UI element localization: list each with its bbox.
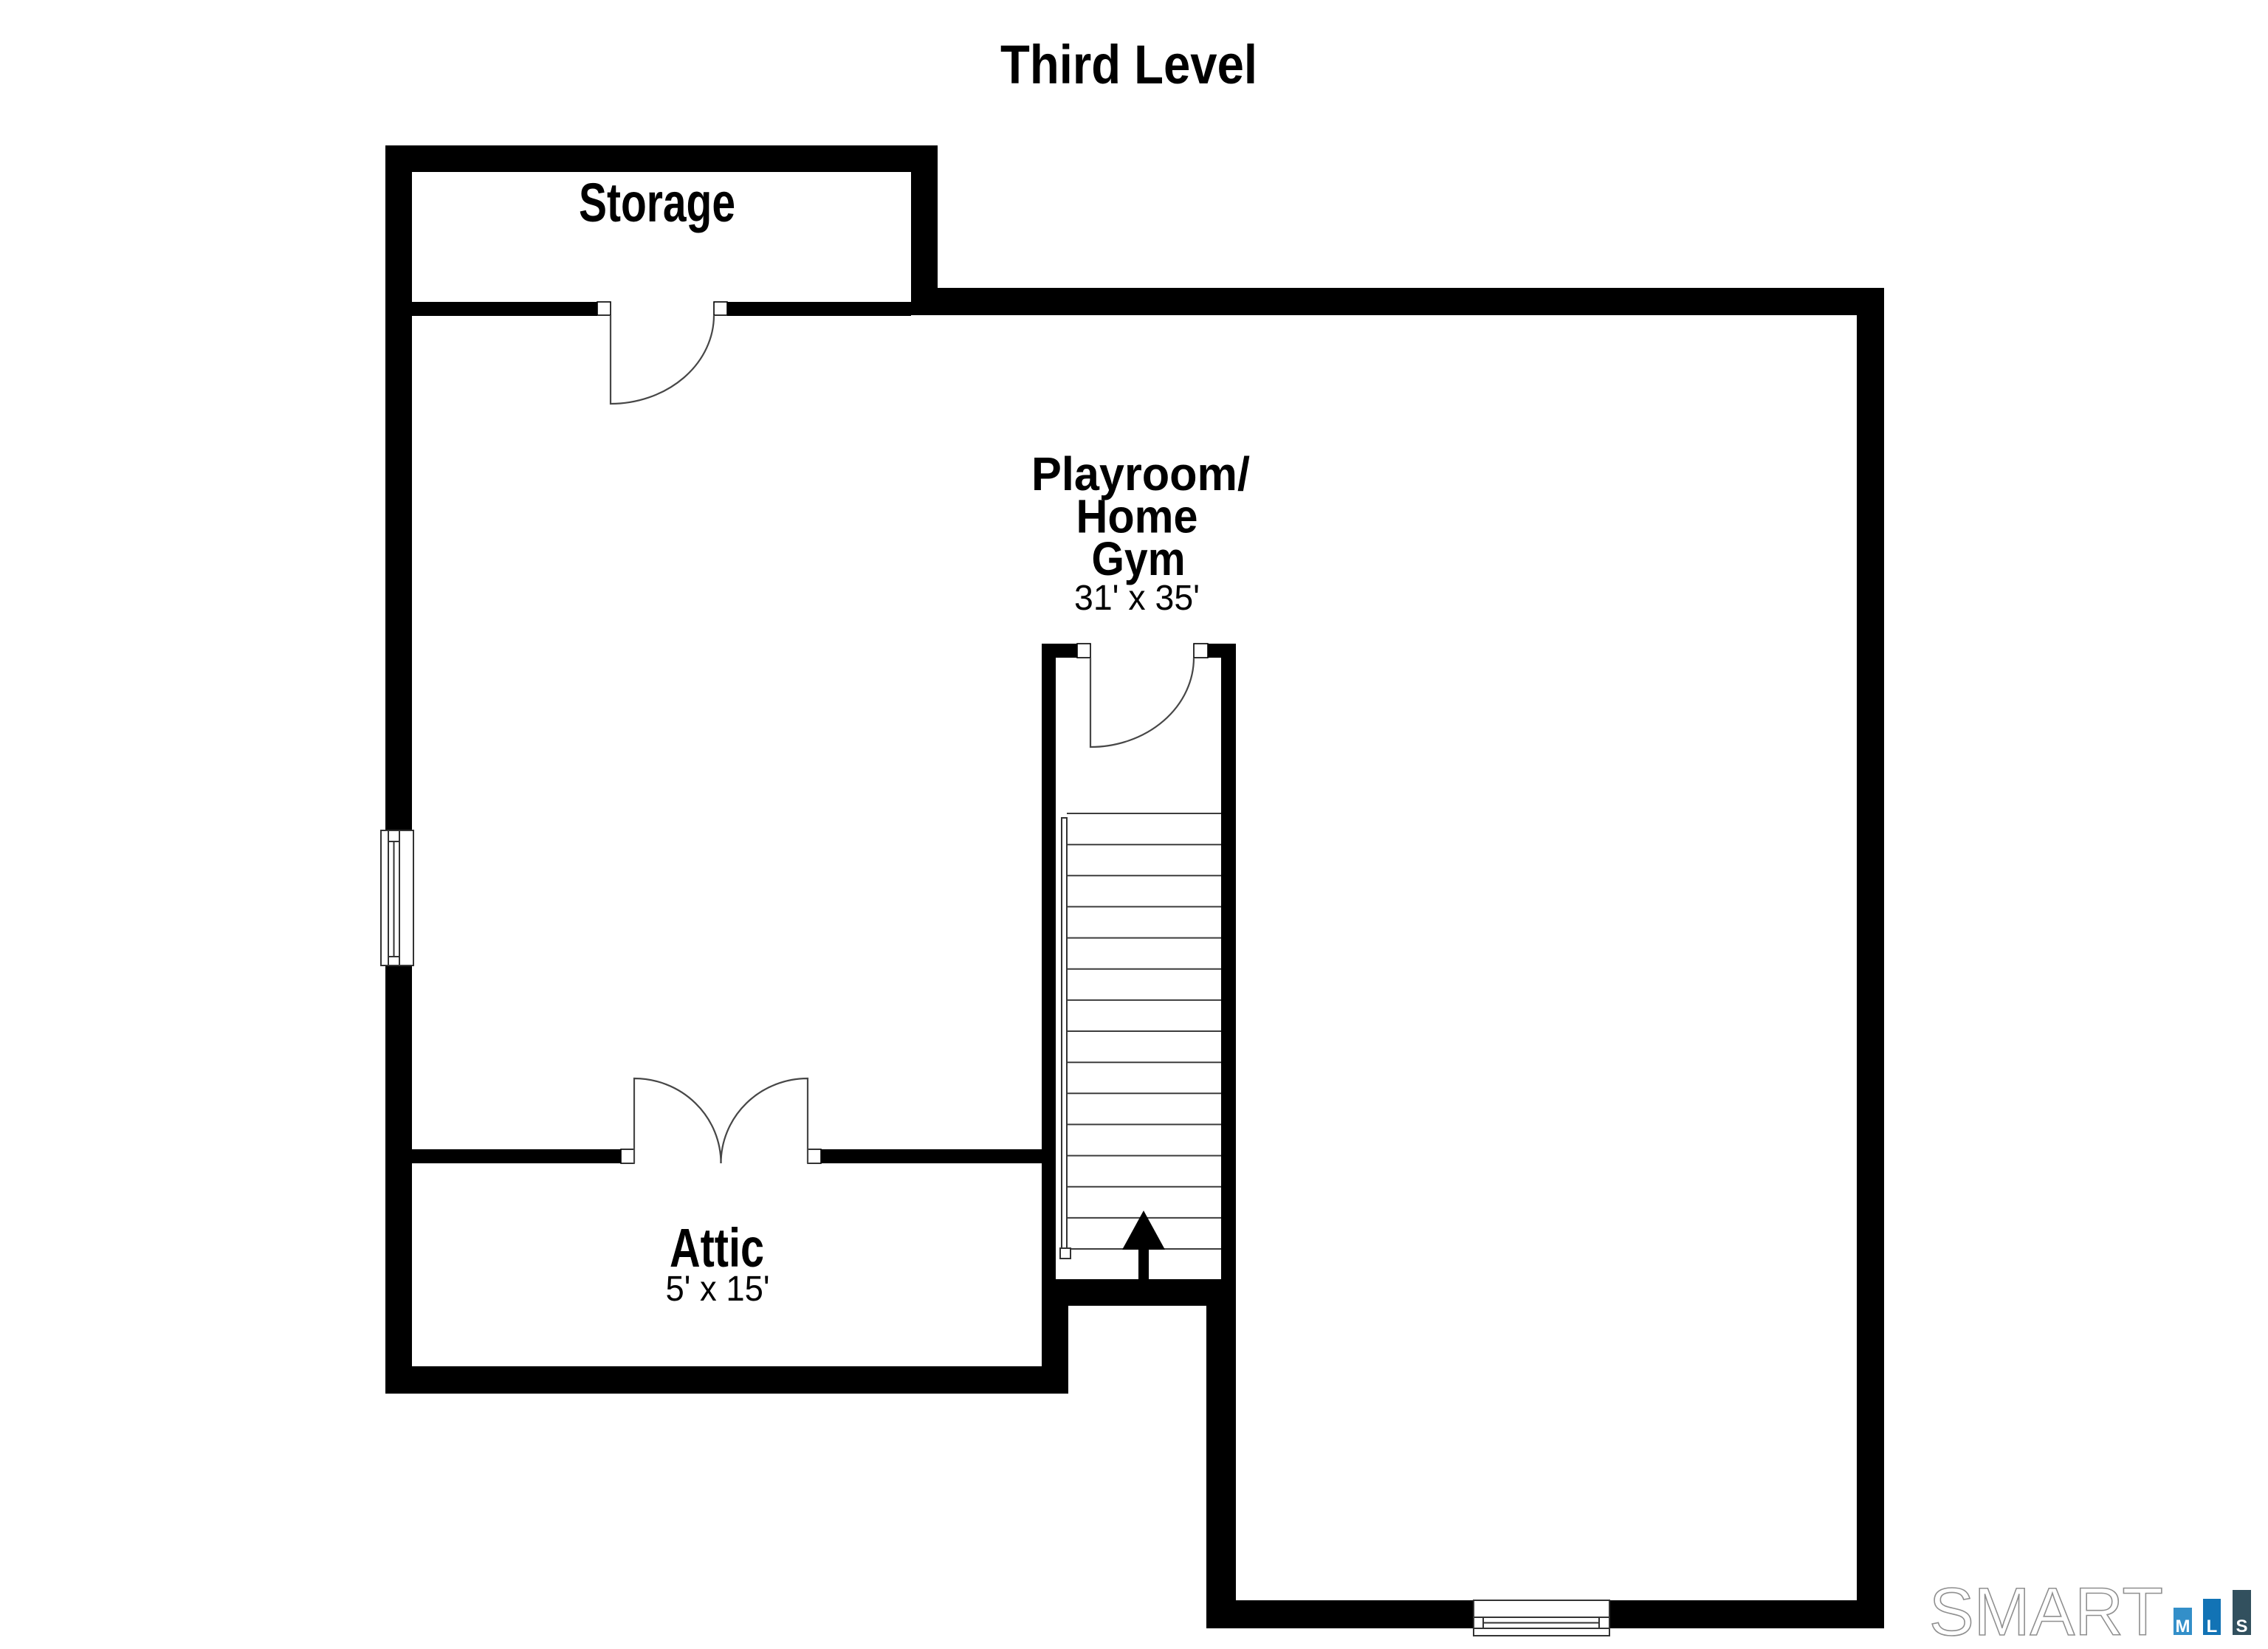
svg-text:Gym: Gym xyxy=(1092,532,1186,585)
svg-text:Storage: Storage xyxy=(579,172,735,233)
svg-text:5' x 15': 5' x 15' xyxy=(666,1270,770,1309)
svg-text:Third Level: Third Level xyxy=(1000,34,1257,95)
svg-text:31' x 35': 31' x 35' xyxy=(1074,579,1200,618)
svg-text:SMART: SMART xyxy=(1929,1574,2163,1649)
svg-text:M: M xyxy=(2176,1617,2190,1636)
svg-text:S: S xyxy=(2236,1617,2247,1636)
svg-text:L: L xyxy=(2207,1617,2218,1636)
